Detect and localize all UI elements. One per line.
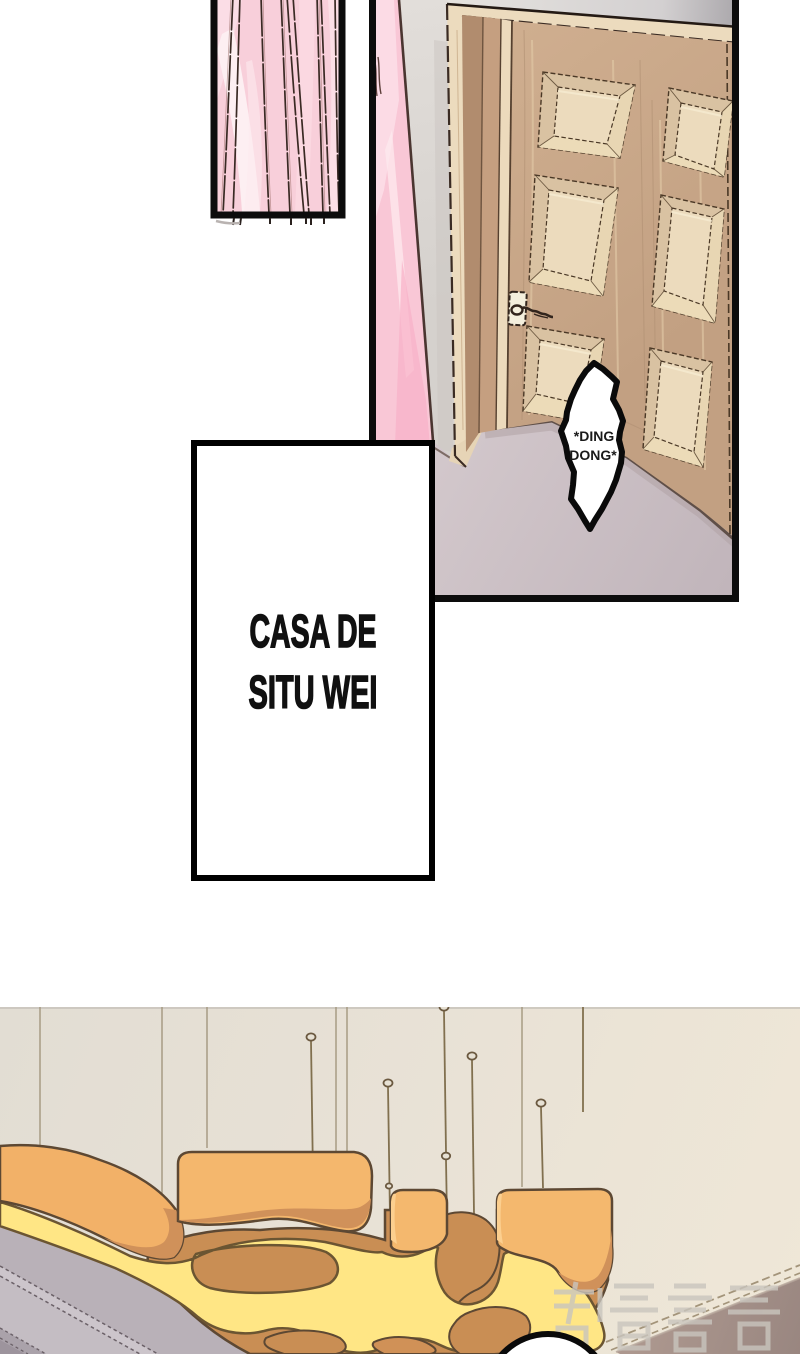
svg-text:*DING: *DING <box>574 428 615 444</box>
svg-text:SITU WEI: SITU WEI <box>249 666 378 718</box>
svg-text:CASA DE: CASA DE <box>250 605 377 657</box>
svg-text:DONG*: DONG* <box>569 447 617 463</box>
